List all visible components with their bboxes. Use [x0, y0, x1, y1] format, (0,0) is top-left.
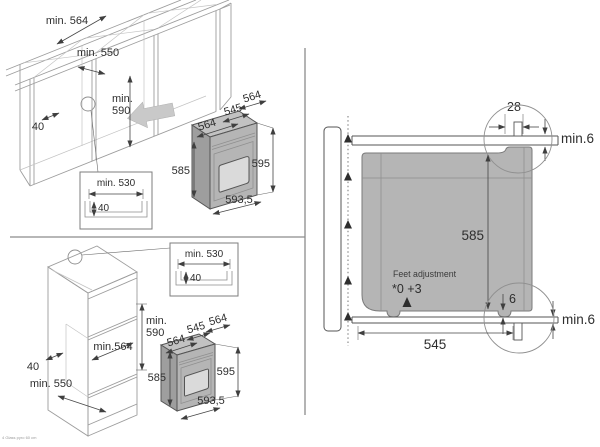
height-label: 585 — [461, 228, 484, 243]
detail-callout-circle — [68, 250, 82, 264]
cutout-width-label: min. 530 — [185, 249, 224, 260]
oven-depth-label: 545 — [186, 320, 207, 337]
oven-body-section — [362, 147, 532, 317]
feet-range-label: *0 +3 — [392, 282, 422, 296]
depth-label: 545 — [424, 337, 447, 352]
rail-width-label: 40 — [32, 121, 44, 133]
side-section-diagram: 28 min.6 585 Feet adjustment *0 +3 — [324, 100, 595, 353]
figure-caption: 4 Glass pyro 60 cm — [2, 435, 37, 440]
bottom-clearance-dimension: min.6 — [553, 301, 595, 339]
tall-cabinet-diagram: min. 530 40 min. 590 min.564 40 min. 550 — [27, 243, 238, 436]
niche-width-label: min. 564 — [46, 15, 88, 27]
niche-height-label-line2: 590 — [146, 327, 164, 339]
rail-width-label: 40 — [27, 361, 39, 373]
base-cabinet-diagram: min. 564 min. 550 min. 590 40 min. 530 4… — [6, 0, 273, 229]
rear-gap-label: 28 — [507, 100, 521, 114]
oven-height-side-label: 595 — [217, 366, 235, 378]
niche-depth-label: min. 550 — [77, 47, 119, 59]
oven-width-bottom-label: 593,5 — [225, 194, 253, 206]
furniture-front-panel — [324, 127, 341, 331]
niche-depth-label: min. 550 — [30, 378, 72, 390]
feet-note-label: Feet adjustment — [393, 269, 457, 279]
bottom-shelf — [352, 317, 558, 340]
niche-height-label-line1: min. — [146, 315, 167, 327]
oven-height-front-label: 585 — [172, 165, 190, 177]
oven-height-front-label: 585 — [148, 372, 166, 384]
bottom-gap-label: 6 — [509, 292, 516, 306]
diagram-canvas: min. 564 min. 550 min. 590 40 min. 530 4… — [0, 0, 600, 447]
bottom-clearance-label: min.6 — [562, 312, 595, 327]
top-clearance-label: min.6 — [561, 131, 594, 146]
cutout-height-label: 40 — [98, 203, 110, 214]
niche-height-label-line2: 590 — [112, 105, 130, 117]
installation-diagram-page: min. 564 min. 550 min. 590 40 min. 530 4… — [0, 0, 600, 447]
oven-height-side-label: 595 — [252, 158, 270, 170]
top-worktop — [352, 136, 558, 145]
detail-callout-circle — [81, 97, 95, 111]
shelf-front-tab — [514, 323, 522, 340]
cutout-height-label: 40 — [190, 273, 202, 284]
cutout-width-label: min. 530 — [97, 178, 136, 189]
oven-width-bottom-label: 593,5 — [197, 395, 225, 407]
cutout-detail-box: min. 530 40 — [170, 243, 238, 296]
rear-bracket-tab — [514, 122, 522, 136]
cutout-detail-box: min. 530 40 — [80, 172, 152, 229]
detail-leader-line — [82, 248, 170, 255]
depth-dimension: 545 — [358, 326, 513, 352]
